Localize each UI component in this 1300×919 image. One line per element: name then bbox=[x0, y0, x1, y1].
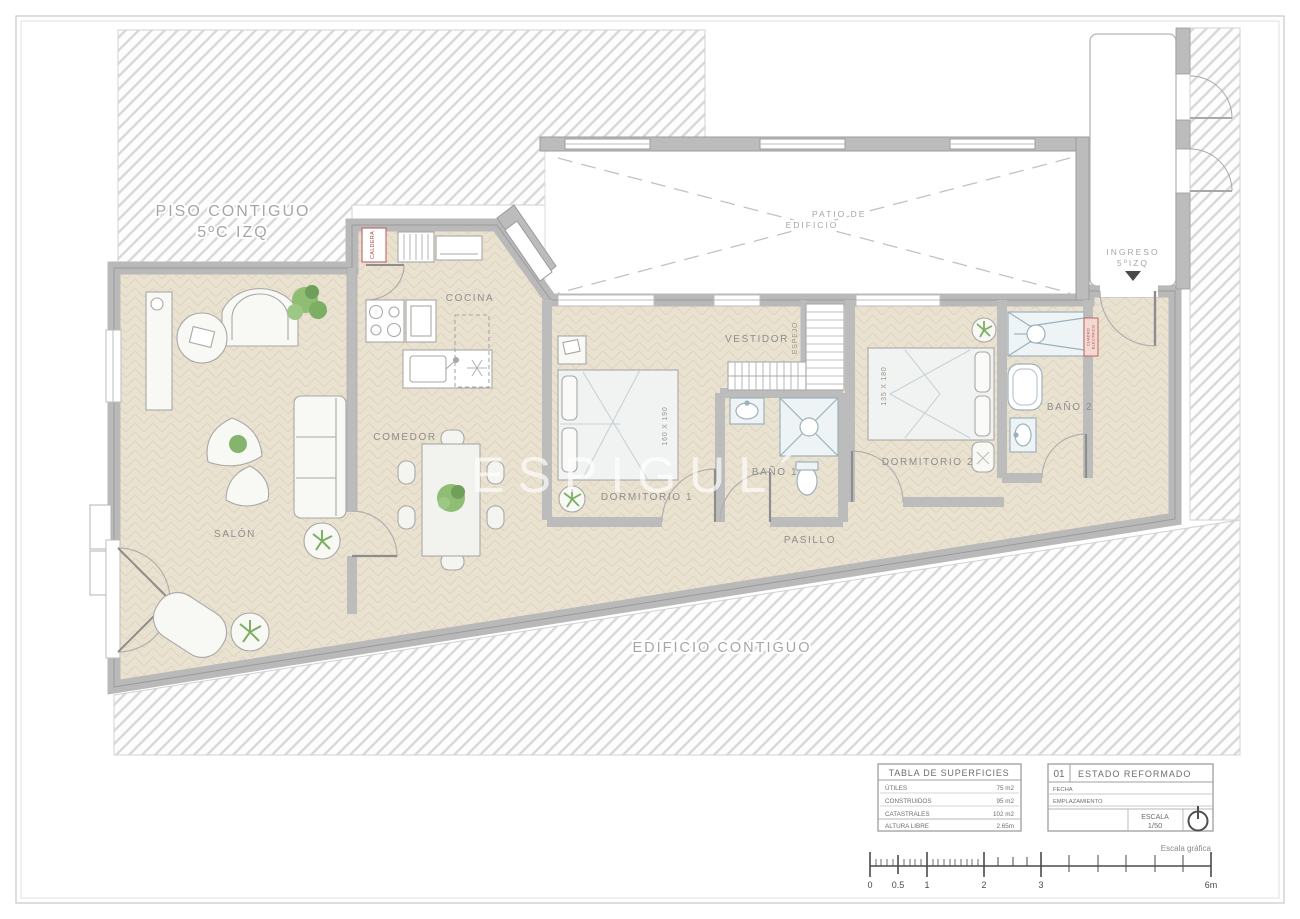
scale-bar: Escala gráfica bbox=[867, 844, 1217, 890]
scale-tick-1: 0.5 bbox=[892, 880, 905, 890]
scale-tick-5: 6m bbox=[1205, 880, 1218, 890]
plan-drawing: CUADRO ELÉCTRICO CALDERA ESPIGUL´ COCINA… bbox=[0, 0, 1300, 919]
sofa bbox=[294, 396, 346, 518]
fecha-label: FECHA bbox=[1053, 787, 1073, 793]
plant-small-1 bbox=[229, 435, 247, 453]
escala-label: ESCALA bbox=[1141, 814, 1169, 821]
ingreso-label-1: INGRESO bbox=[1106, 247, 1159, 257]
surfaces-row-label-1: CONSTRUIDOS bbox=[885, 798, 932, 805]
scale-tick-2: 1 bbox=[924, 880, 929, 890]
room-label-bano2: BAÑO 2 bbox=[1047, 400, 1093, 413]
surfaces-row-label-2: CATASTRALES bbox=[885, 811, 930, 818]
room-label-dormitorio2: DORMITORIO 2 bbox=[882, 457, 974, 468]
surfaces-table: TABLA DE SUPERFICIES ÚTILES 75 m2 CONSTR… bbox=[878, 764, 1021, 831]
surfaces-title: TABLA DE SUPERFICIES bbox=[889, 768, 1010, 778]
scale-tick-0: 0 bbox=[867, 880, 872, 890]
room-label-bano1: BAÑO 1 bbox=[752, 465, 798, 478]
patio-label-1: PATIO DE bbox=[812, 209, 866, 219]
stove bbox=[366, 300, 404, 342]
surfaces-row-value-2: 102 m2 bbox=[993, 811, 1015, 818]
patio-label-2: EDIFICIO bbox=[786, 220, 839, 230]
surfaces-row-value-1: 95 m2 bbox=[996, 798, 1014, 805]
caldera-label: CALDERA bbox=[370, 231, 376, 259]
room-label-dormitorio1: DORMITORIO 1 bbox=[601, 492, 693, 503]
kitchen-cabinet-2 bbox=[436, 236, 482, 260]
cuadro-electrico-label-2: ELÉCTRICO bbox=[1091, 325, 1096, 349]
room-label-vestidor: VESTIDOR bbox=[725, 334, 789, 345]
bed2-size-label: 135 X 180 bbox=[881, 366, 888, 405]
room-label-comedor: COMEDOR bbox=[373, 432, 436, 443]
room-label-salon: SALÓN bbox=[214, 527, 256, 540]
surfaces-row-value-0: 75 m2 bbox=[996, 785, 1014, 792]
lamp-icon bbox=[151, 298, 163, 310]
scale-bar-caption: Escala gráfica bbox=[1161, 844, 1212, 853]
hatch-stairwell bbox=[1190, 28, 1240, 520]
room-label-cocina: COCINA bbox=[446, 293, 495, 304]
salon-window bbox=[106, 330, 121, 402]
floor-plan-sheet: { "plan": { "watermark": "ESPIGUL´", "co… bbox=[0, 0, 1300, 919]
cuadro-electrico-label-1: CUADRO bbox=[1087, 328, 1091, 346]
cuadro-electrico-badge: CUADRO ELÉCTRICO bbox=[1084, 318, 1098, 356]
vestidor-wardrobe bbox=[728, 362, 806, 390]
edificio-contiguo-label: EDIFICIO CONTIGUO bbox=[633, 640, 812, 656]
scale-tick-4: 3 bbox=[1038, 880, 1043, 890]
piso-contiguo-label-1: PISO CONTIGUO bbox=[156, 203, 311, 220]
escala-value: 1/50 bbox=[1148, 821, 1163, 830]
espejo-label: ESPEJO bbox=[792, 322, 799, 354]
ingreso-label-2: 5ºIZQ bbox=[1117, 258, 1149, 268]
bed1-size-label: 160 X 190 bbox=[662, 406, 669, 445]
closet-shelves bbox=[806, 304, 844, 390]
bedroom-windows bbox=[558, 295, 940, 306]
armchair bbox=[222, 289, 298, 346]
table-plant bbox=[437, 484, 465, 512]
piso-contiguo-label-2: 5ºC IZQ bbox=[197, 224, 268, 241]
sheet-title: ESTADO REFORMADO bbox=[1078, 769, 1191, 779]
room-label-pasillo: PASILLO bbox=[784, 535, 836, 546]
surfaces-row-value-3: 2.65m bbox=[996, 823, 1014, 830]
sheet-title-block: 01 ESTADO REFORMADO FECHA EMPLAZAMIENTO … bbox=[1048, 764, 1213, 831]
surfaces-row-label-3: ALTURA LIBRE bbox=[885, 823, 929, 830]
bench bbox=[972, 442, 994, 472]
surfaces-row-label-0: ÚTILES bbox=[885, 783, 907, 792]
patio-windows bbox=[565, 139, 1035, 149]
scale-tick-3: 2 bbox=[981, 880, 986, 890]
emplazamiento-label: EMPLAZAMIENTO bbox=[1053, 799, 1103, 805]
sheet-number: 01 bbox=[1053, 769, 1065, 780]
